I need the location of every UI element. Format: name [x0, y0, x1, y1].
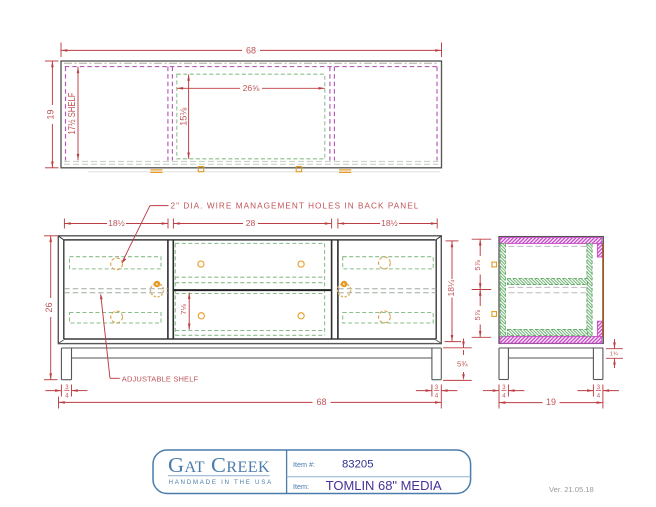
- svg-text:18¼: 18¼: [446, 279, 456, 297]
- svg-text:18½: 18½: [108, 218, 125, 228]
- svg-text:1¾: 1¾: [610, 352, 618, 358]
- svg-text:68: 68: [316, 397, 326, 407]
- svg-text:Ver. 21.05.18: Ver. 21.05.18: [549, 485, 594, 494]
- svg-text:26: 26: [44, 302, 54, 312]
- svg-text:5¾: 5¾: [457, 360, 468, 369]
- svg-text:15⅛: 15⅛: [178, 107, 189, 125]
- svg-text:TOMLIN 68" MEDIA: TOMLIN 68" MEDIA: [326, 478, 442, 493]
- svg-text:ADJUSTABLE SHELF: ADJUSTABLE SHELF: [122, 374, 199, 383]
- svg-text:26⅝: 26⅝: [243, 83, 261, 93]
- svg-text:68: 68: [246, 45, 256, 55]
- svg-text:7⅛: 7⅛: [179, 304, 188, 315]
- svg-text:17½ SHELF: 17½ SHELF: [67, 92, 78, 134]
- svg-text:2" DIA. WIRE MANAGEMENT HOLES: 2" DIA. WIRE MANAGEMENT HOLES IN BACK PA…: [171, 202, 420, 211]
- svg-text:19: 19: [46, 109, 56, 119]
- svg-text:Item:: Item:: [293, 482, 309, 491]
- svg-text:5⅞: 5⅞: [473, 309, 482, 320]
- svg-text:83205: 83205: [342, 459, 374, 471]
- svg-text:28: 28: [246, 218, 256, 228]
- svg-text:19: 19: [546, 397, 556, 407]
- svg-text:Item #:: Item #:: [293, 460, 315, 469]
- svg-text:5⅞: 5⅞: [473, 259, 482, 270]
- svg-text:18½: 18½: [381, 218, 398, 228]
- svg-text:HANDMADE IN THE USA: HANDMADE IN THE USA: [169, 479, 273, 486]
